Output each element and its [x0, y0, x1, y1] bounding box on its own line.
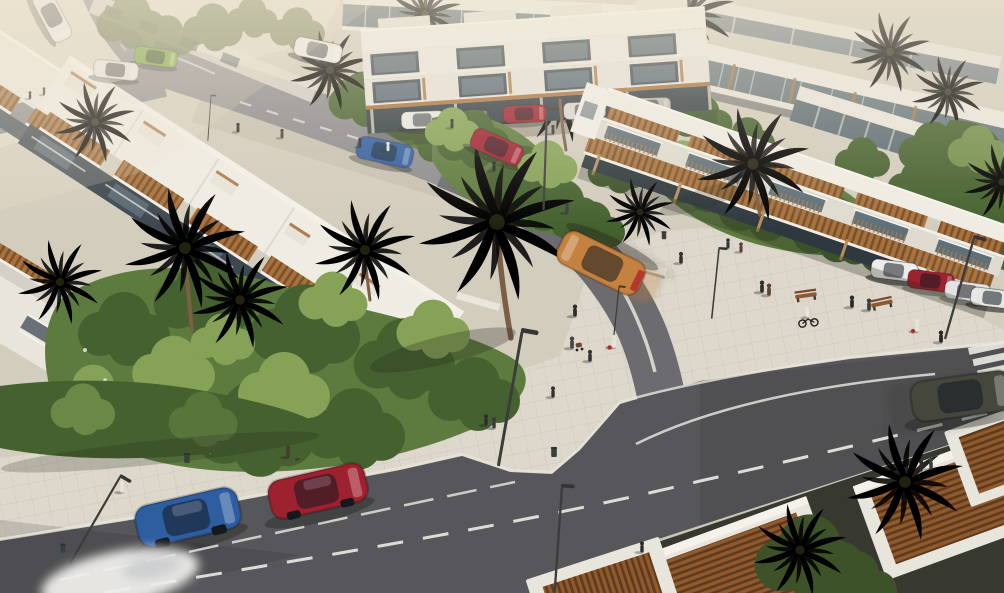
aerial-community-render — [0, 0, 1004, 593]
waste-bin — [551, 447, 557, 457]
waste-bin — [184, 453, 190, 463]
waste-bin — [661, 231, 666, 239]
render-canvas — [0, 0, 1004, 593]
waste-bin — [60, 544, 66, 553]
